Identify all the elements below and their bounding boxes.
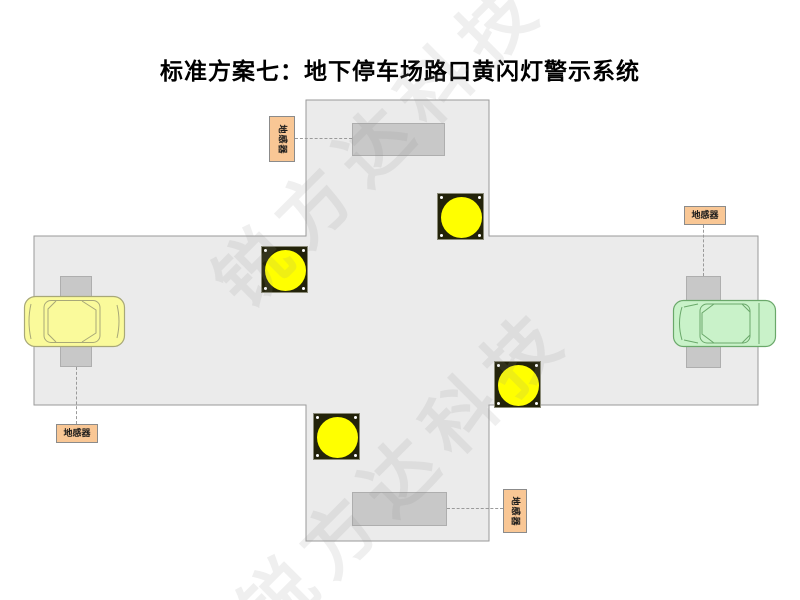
screw-dot	[535, 402, 538, 405]
warning-light-bottom-right	[494, 361, 541, 408]
yellow-light-lens	[441, 197, 482, 238]
ground-sensor-top	[352, 123, 445, 156]
connector-line-top	[295, 138, 352, 139]
connector-line-right	[703, 225, 704, 276]
sensor-label-text: 地感器	[691, 211, 718, 220]
car-green	[672, 299, 777, 348]
yellow-light-lens	[498, 365, 539, 406]
screw-dot	[440, 234, 443, 237]
screw-dot	[316, 416, 319, 419]
screw-dot	[497, 402, 500, 405]
screw-dot	[354, 416, 357, 419]
screw-dot	[264, 249, 267, 252]
sensor-label-right: 地感器	[684, 206, 726, 225]
sensor-label-top: 地感器	[269, 116, 295, 162]
screw-dot	[478, 234, 481, 237]
yellow-light-lens	[317, 417, 358, 458]
warning-light-left	[261, 246, 308, 293]
page-title: 标准方案七：地下停车场路口黄闪灯警示系统	[0, 52, 800, 86]
sensor-label-text: 地感器	[278, 124, 287, 154]
sensor-label-text: 地感器	[511, 496, 520, 526]
screw-dot	[440, 196, 443, 199]
connector-line-left	[76, 367, 77, 424]
screw-dot	[354, 454, 357, 457]
screw-dot	[302, 287, 305, 290]
sensor-label-bottom: 地感器	[503, 489, 527, 533]
screw-dot	[316, 454, 319, 457]
screw-dot	[478, 196, 481, 199]
ground-sensor-bottom	[352, 492, 447, 526]
sensor-label-left: 地感器	[56, 424, 98, 443]
screw-dot	[264, 287, 267, 290]
screw-dot	[535, 364, 538, 367]
screw-dot	[302, 249, 305, 252]
warning-light-top	[437, 193, 484, 240]
sensor-label-text: 地感器	[63, 429, 90, 438]
screw-dot	[497, 364, 500, 367]
car-yellow	[23, 295, 126, 348]
road-cross-shape	[34, 100, 758, 541]
warning-light-bottom	[313, 413, 360, 460]
yellow-light-lens	[265, 250, 306, 291]
diagram-canvas: 标准方案七：地下停车场路口黄闪灯警示系统 地感器	[0, 0, 800, 600]
connector-line-bottom	[447, 508, 503, 509]
